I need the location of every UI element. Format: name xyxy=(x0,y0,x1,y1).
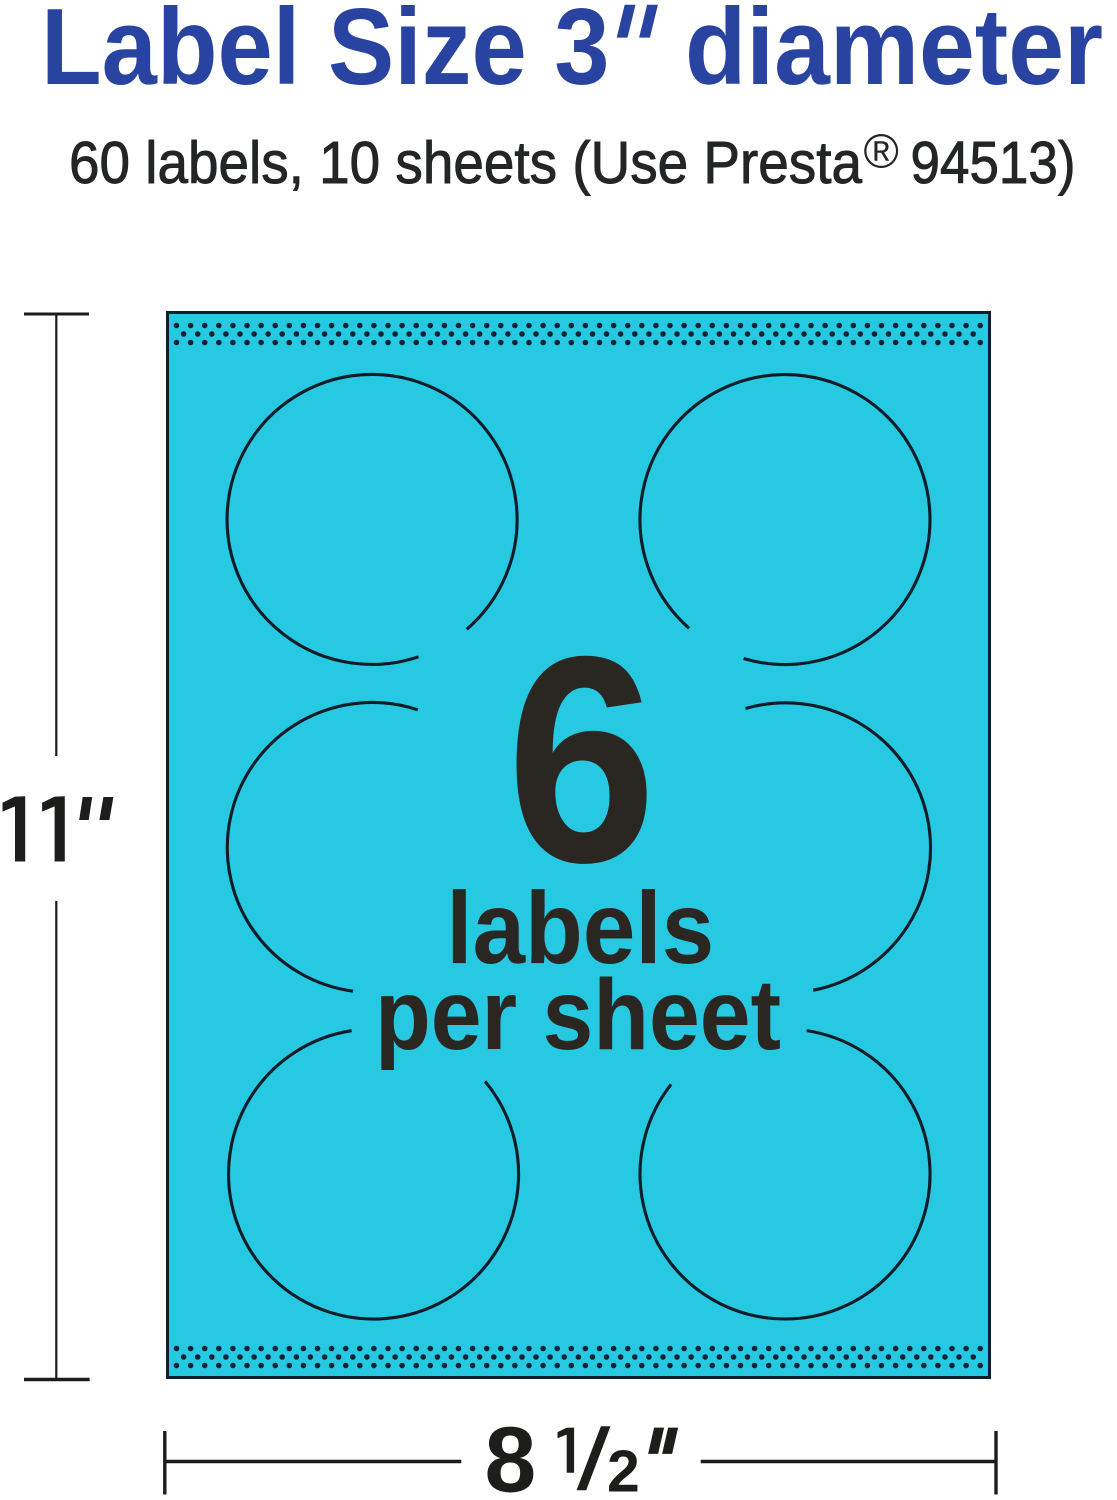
svg-text:per sheet: per sheet xyxy=(375,959,781,1071)
svg-text:94513): 94513) xyxy=(911,130,1076,196)
svg-text:2: 2 xyxy=(607,1439,640,1500)
svg-text:8: 8 xyxy=(485,1408,537,1500)
svg-text:60 labels, 10 sheets (Use Pres: 60 labels, 10 sheets (Use Presta xyxy=(69,130,862,196)
svg-text:®: ® xyxy=(864,126,899,179)
svg-text:Label Size 3: Label Size 3 xyxy=(41,0,610,107)
svg-text:diameter: diameter xyxy=(685,0,1103,107)
